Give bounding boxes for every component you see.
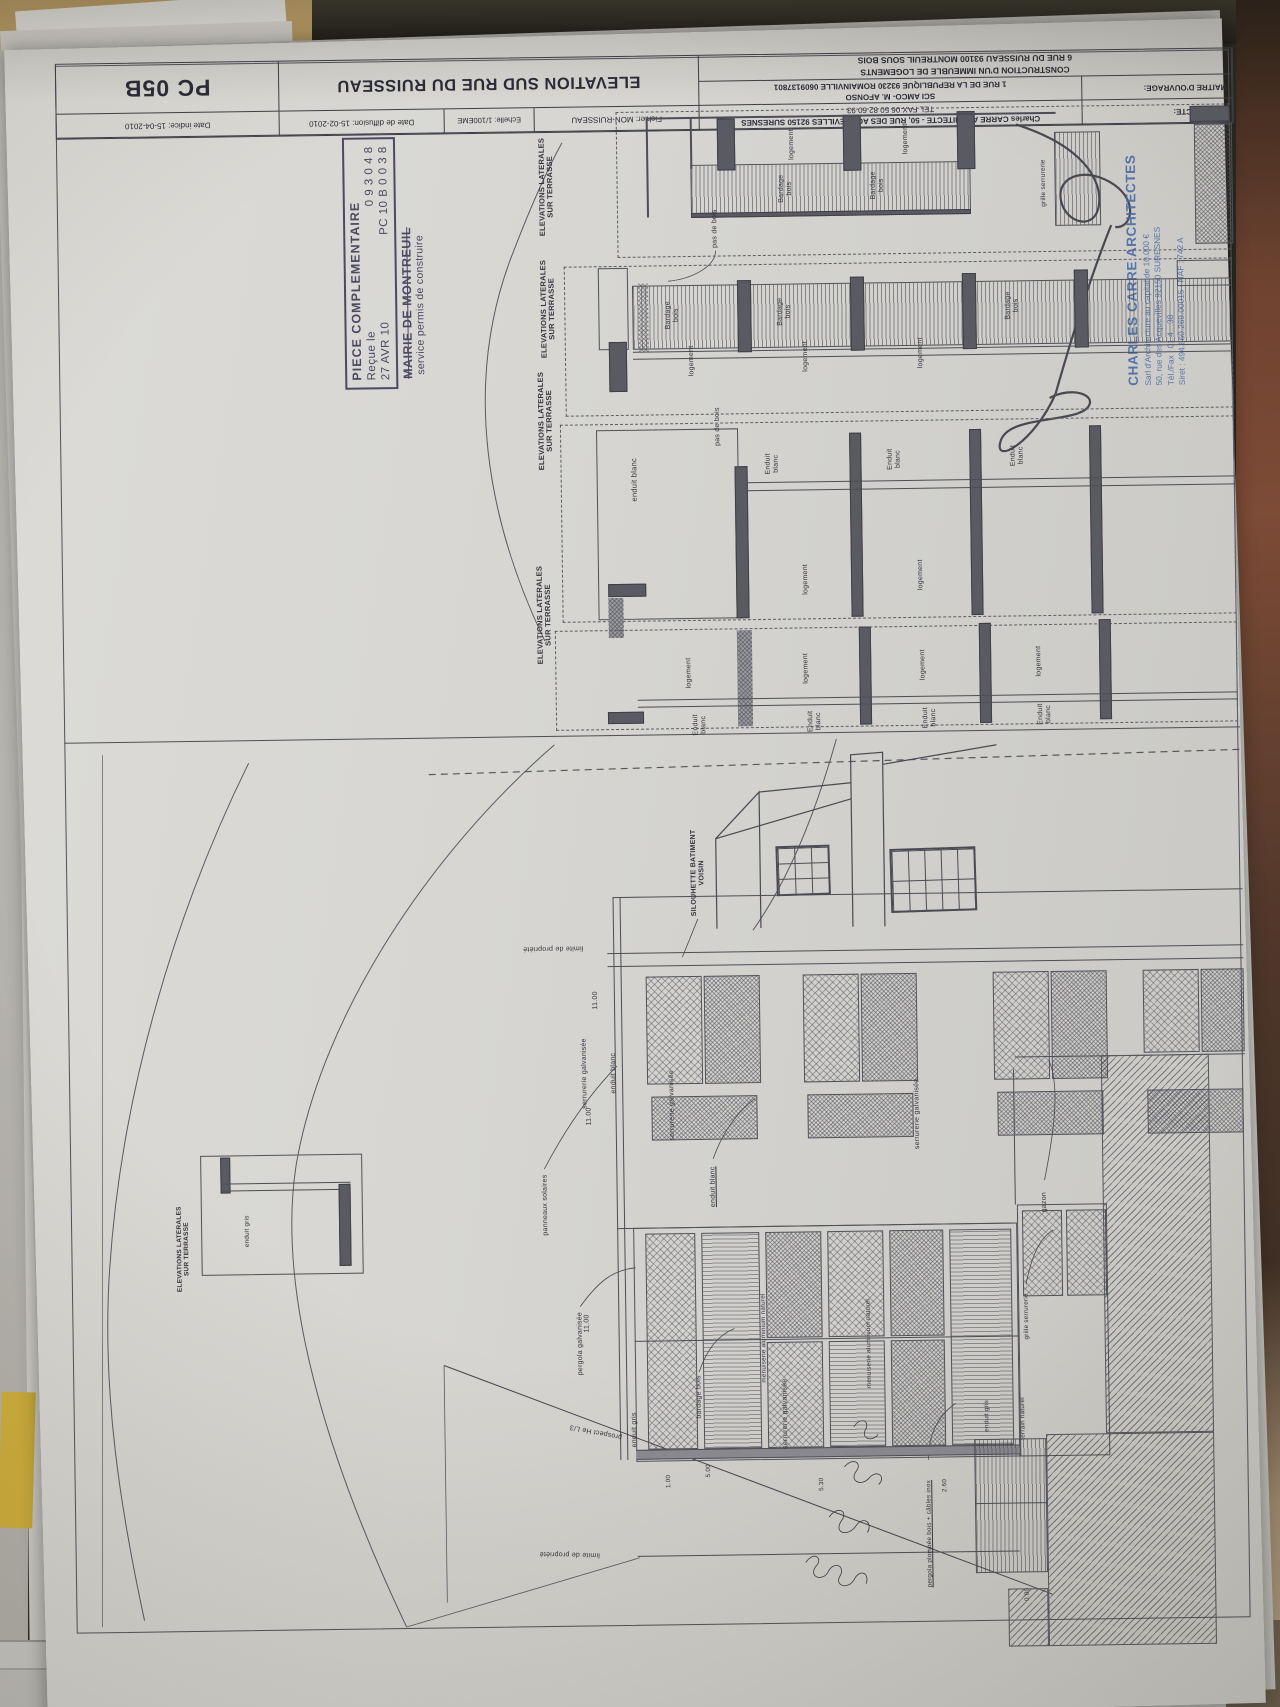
annotation-label-43: enduit blanc — [610, 1053, 618, 1094]
annotation-label-21: Enduit blanc — [1009, 445, 1025, 467]
annotation-label-23: logement — [917, 559, 925, 590]
annotation-label-35: prospect He L/3 — [569, 1422, 623, 1440]
annotation-label-41: serrurerie galvanisée — [913, 1079, 922, 1150]
annotation-label-61: enduit gris — [243, 1215, 250, 1247]
annotation-label-37: 11.00 — [586, 1107, 594, 1125]
annotation-label-13: Bardage bois — [1004, 291, 1020, 319]
annotation-label-42: serrurerie galvanisée — [781, 1378, 790, 1449]
annotation-label-33: limite de propriété — [523, 944, 583, 953]
annotation-label-31: Enduit blanc — [1037, 703, 1053, 725]
annotation-label-25: logement — [802, 653, 810, 684]
annotation-label-1: ELEVATIONS LATERALES SUR TERRASSE — [539, 260, 557, 359]
annotation-label-17: pas de bois — [714, 407, 722, 446]
annotation-label-34: limite de propriété — [539, 1549, 600, 1558]
annotation-label-2: ELEVATIONS LATERALES SUR TERRASSE — [537, 372, 555, 471]
annotation-label-46: pergola galvanisée — [576, 1312, 585, 1375]
annotation-label-48: bardage bois — [695, 1375, 703, 1419]
annotation-label-11: Bardage bois — [664, 301, 680, 329]
annotation-label-19: Enduit blanc — [765, 453, 781, 475]
annotation-label-22: logement — [802, 564, 810, 595]
annotation-label-56: 1.00 — [665, 1475, 672, 1488]
annotation-label-10: grille serrurerie — [1040, 159, 1048, 207]
annotation-label-8: Bardage bois — [870, 171, 886, 199]
annotation-label-58: 5.30 — [818, 1478, 825, 1491]
annotation-label-36: 11.00 — [592, 991, 600, 1009]
sheet-content: ARCHITECTE: Charles CARRE ARCHITECTE - 5… — [0, 0, 1280, 1707]
annotation-label-27: logement — [1035, 646, 1043, 677]
annotation-label-15: logement — [802, 341, 810, 372]
annotation-label-51: gazon — [1041, 1192, 1049, 1212]
annotation-label-20: Enduit blanc — [886, 448, 902, 470]
annotation-label-53: enduit gris — [983, 1400, 990, 1432]
annotation-label-38: 11.00 — [583, 1314, 591, 1332]
annotation-label-60: 0.00 — [1024, 1588, 1031, 1601]
annotation-label-54: terrain naturel — [1019, 1397, 1027, 1440]
annotation-layer: ELEVATIONS LATERALES SUR TERRASSEELEVATI… — [0, 0, 1280, 1707]
annotation-label-16: logement — [917, 337, 925, 368]
annotation-label-52: grille serrurerie — [1023, 1293, 1031, 1339]
annotation-label-47: enduit gris — [631, 1412, 639, 1447]
annotation-label-26: logement — [919, 649, 927, 680]
annotation-label-30: Enduit blanc — [922, 707, 938, 729]
annotation-label-24: logement — [685, 658, 693, 689]
annotation-label-28: Enduit blanc — [692, 714, 708, 736]
annotation-label-4: ELEVATIONS LATERALES SUR TERRASSE — [176, 1206, 192, 1292]
annotation-label-5: logement — [788, 129, 796, 160]
annotation-label-40: serrurerie galvanisée — [668, 1070, 677, 1141]
annotation-label-18: enduit blanc — [630, 458, 639, 502]
annotation-label-29: Enduit blanc — [807, 710, 823, 732]
annotation-label-50: menuiserie aluminium naturel — [865, 1299, 873, 1388]
annotation-label-9: pas de bois — [711, 209, 719, 248]
annotation-label-6: logement — [902, 123, 910, 154]
annotation-label-39: serrurerie galvanisée — [581, 1038, 590, 1109]
annotation-label-14: logement — [688, 345, 696, 376]
annotation-label-32: SILOUHETTE BATIMENT VOISIN — [690, 829, 707, 916]
annotation-label-57: 5.00 — [705, 1464, 712, 1477]
annotation-label-3: ELEVATIONS LATERALES SUR TERRASSE — [535, 566, 553, 665]
annotation-label-45: panneaux solaires — [541, 1174, 550, 1235]
photo-of-architectural-drawing: ARCHITECTE: Charles CARRE ARCHITECTE - 5… — [0, 0, 1280, 1707]
annotation-label-12: Bardage bois — [776, 297, 792, 325]
annotation-label-7: Bardage bois — [778, 174, 794, 202]
annotation-label-59: 2.60 — [941, 1479, 948, 1492]
annotation-label-0: ELEVATIONS LATERALES SUR TERRASSE — [538, 138, 556, 237]
annotation-label-44: enduit blanc — [709, 1166, 717, 1207]
annotation-label-55: pergola plombée bois + câbles inox — [925, 1480, 934, 1587]
annotation-label-49: menuiserie aluminium naturel — [760, 1293, 768, 1382]
